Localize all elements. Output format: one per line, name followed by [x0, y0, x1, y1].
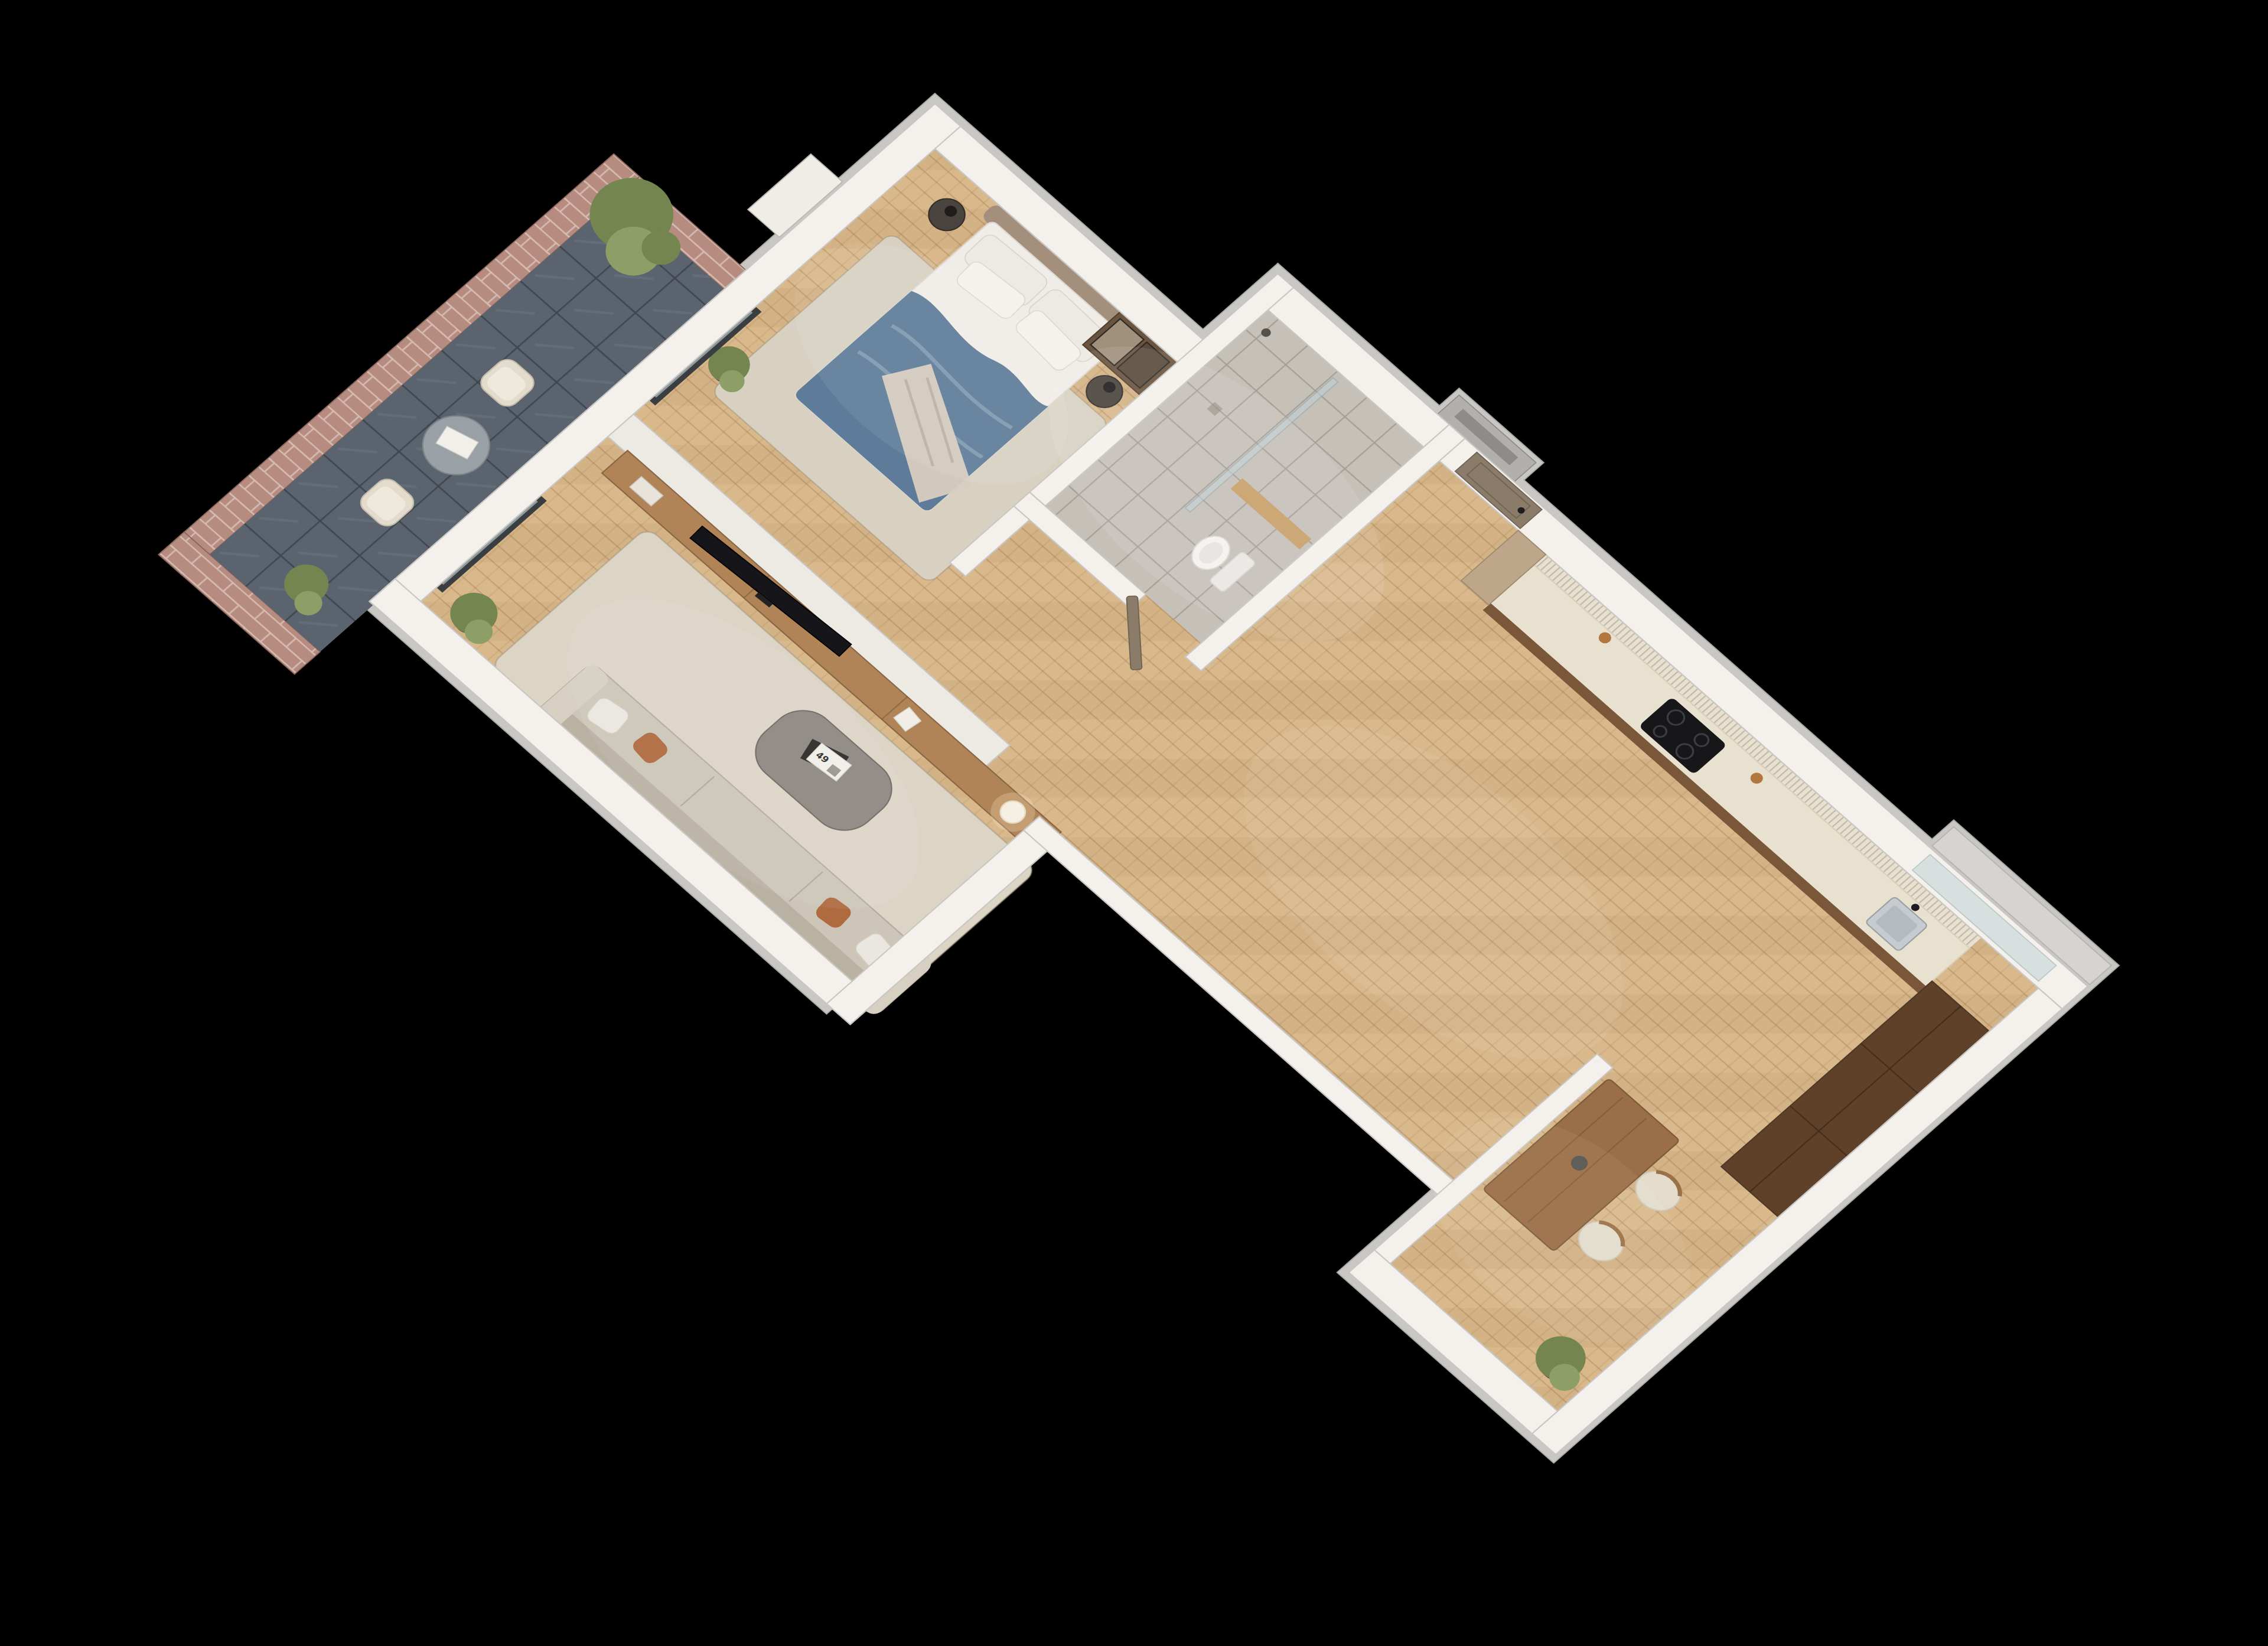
floorplan-stage: 49 — [0, 0, 2268, 1646]
floorplan-render: 49 — [0, 0, 2268, 1646]
apartment: 49 — [159, 0, 2120, 1623]
